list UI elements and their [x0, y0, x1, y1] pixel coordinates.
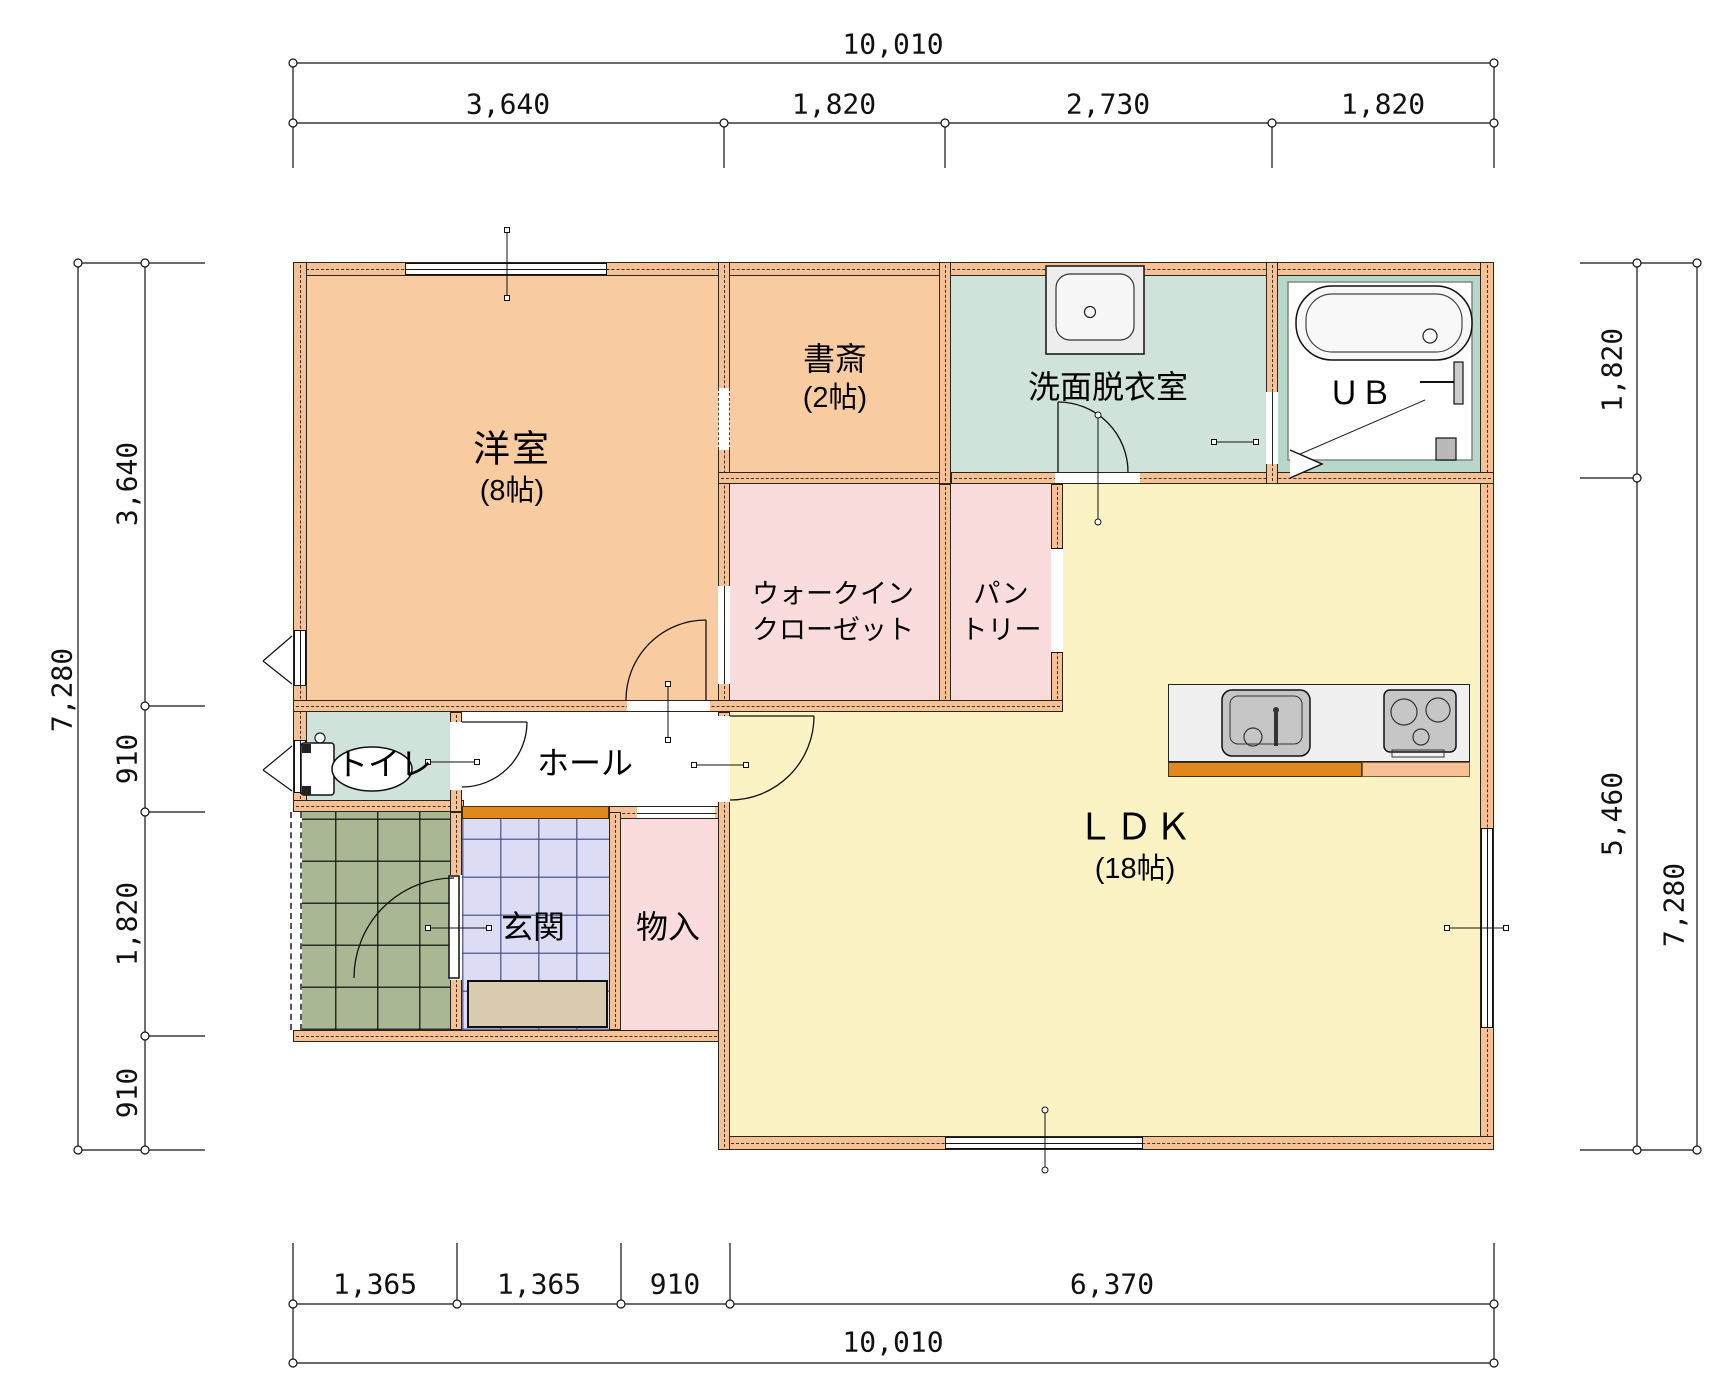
window-yoshitsu-left — [294, 630, 306, 686]
dim-right-total: 7,280 — [1658, 863, 1691, 947]
doorway-senmen — [1055, 473, 1140, 483]
dim-bottom-seg-1: 1,365 — [497, 1268, 581, 1301]
label-hall: ホール — [537, 747, 633, 781]
dim-right-seg-1: 5,460 — [1596, 772, 1629, 856]
genkan-step — [462, 806, 609, 819]
dim-right-seg-0: 1,820 — [1596, 328, 1629, 412]
wall-genkan-right — [609, 812, 621, 1030]
dim-bottom-seg-0: 1,365 — [333, 1268, 417, 1301]
dim-left-total: 7,280 — [46, 648, 79, 732]
label-monoire: 物入 — [636, 911, 700, 945]
window-yoshitsu-top — [405, 263, 607, 275]
wall-wic-right — [939, 484, 951, 712]
wall-exterior-bottom-left — [293, 1030, 730, 1042]
slider-monoire — [637, 807, 715, 818]
dim-left-seg-2: 1,820 — [111, 882, 144, 966]
doorway-genkan — [450, 875, 462, 980]
dim-bottom-total: 10,010 — [842, 1326, 943, 1359]
label-yoshitsu: 洋室 — [473, 431, 551, 470]
label-unit-bath: ＵＢ — [1328, 377, 1392, 411]
label-senmen: 洗面脱衣室 — [1028, 371, 1188, 405]
window-toilet-left — [294, 740, 306, 793]
dim-top-seg-1: 1,820 — [792, 88, 876, 121]
dim-top-seg-2: 2,730 — [1066, 88, 1150, 121]
porch-floor — [293, 812, 450, 1030]
kitchen-counter — [1168, 684, 1470, 762]
dim-bottom-seg-3: 6,370 — [1070, 1268, 1154, 1301]
casement-window-marks — [263, 636, 292, 791]
room-ldk-floor-upper — [1063, 484, 1480, 712]
opening-pantry — [1051, 548, 1063, 653]
wall-exterior-left — [293, 262, 307, 812]
label-pantry-2: トリー — [961, 616, 1042, 644]
room-unitbath-floor — [1278, 276, 1480, 472]
wall-shosai-right — [939, 262, 951, 484]
wall-toilet-bottom — [293, 800, 464, 812]
label-genkan: 玄関 — [501, 911, 565, 945]
label-yoshitsu-size: (8帖) — [480, 476, 544, 506]
doorway-toilet — [450, 722, 462, 790]
kitchen-counter-bar — [1168, 762, 1362, 777]
window-ldk-right — [1481, 828, 1493, 1028]
door-senmen-ub — [1266, 392, 1278, 464]
label-ldk-size: (18帖) — [1095, 854, 1176, 884]
floor-plan-canvas: 洋室 (8帖) 書斎 (2帖) 洗面脱衣室 ＵＢ ウォークイン クローゼット パ… — [0, 0, 1736, 1398]
dim-top-seg-0: 3,640 — [466, 88, 550, 121]
dim-bottom-seg-2: 910 — [650, 1268, 701, 1301]
label-wic-2: クローゼット — [752, 616, 914, 644]
label-shosai: 書斎 — [803, 343, 867, 377]
porch-open-edge — [290, 812, 302, 1030]
kitchen-half-wall — [1362, 762, 1470, 777]
slider-yoshitsu-wic — [718, 586, 730, 684]
label-pantry-1: パン — [973, 580, 1028, 608]
window-ldk-bottom — [945, 1137, 1143, 1149]
label-toilet: トイレ — [336, 748, 432, 782]
wall-shosai-bottom — [718, 472, 951, 484]
doorway-hall-ldk — [718, 716, 730, 802]
dim-left-seg-0: 3,640 — [111, 442, 144, 526]
dim-left-seg-3: 910 — [111, 1068, 144, 1119]
label-wic-1: ウォークイン — [752, 580, 914, 608]
label-shosai-size: (2帖) — [803, 383, 867, 413]
dim-left-seg-1: 910 — [111, 734, 144, 785]
opening-yoshitsu-shosai — [718, 388, 730, 450]
wall-senmen-bottom — [951, 472, 1494, 484]
doorway-yoshitsu — [627, 701, 710, 711]
dim-top-seg-3: 1,820 — [1341, 88, 1425, 121]
shoe-cabinet — [467, 980, 608, 1028]
label-ldk: ＬＤＫ — [1077, 809, 1194, 848]
dim-top-total: 10,010 — [842, 28, 943, 61]
